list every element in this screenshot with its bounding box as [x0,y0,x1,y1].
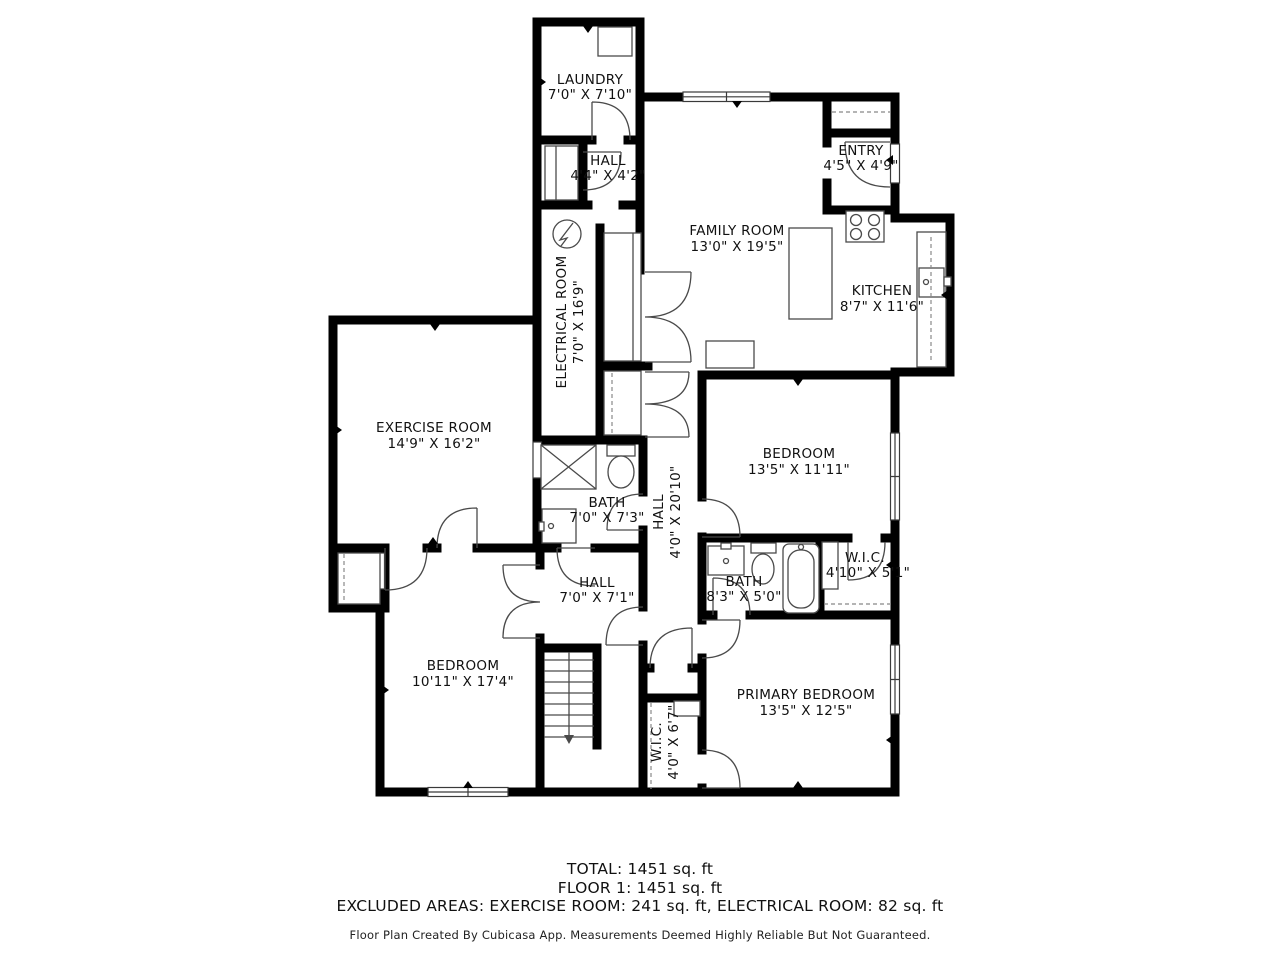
washing-machine-icon [598,27,632,56]
room-dims-wic-right: 4'10" X 5'1" [826,565,910,581]
room-dims-entry: 4'5" X 4'9" [823,158,898,174]
room-label-entry: ENTRY [838,143,884,159]
room-dims-hall-top: 4'4" X 4'2" [570,168,645,184]
room-label-hall-lower: HALL [579,575,615,591]
door-hall-vestibule [650,628,692,668]
summary-floor: FLOOR 1: 1451 sq. ft [0,879,1280,898]
room-label-hall-main: HALL [651,494,667,530]
floor-plan-canvas: LAUNDRY 7'0" X 7'10" HALL 4'4" X 4'2" EN… [0,0,1280,960]
disclaimer-text: Floor Plan Created By Cubicasa App. Meas… [0,928,1280,942]
stairs [544,652,594,744]
door-closet-upper-double [645,272,691,362]
room-dims-electrical: 7'0" X 16'9" [571,280,587,364]
room-label-hall-top: HALL [590,153,626,169]
room-dims-kitchen: 8'7" X 11'6" [840,299,924,315]
shower-icon [541,445,596,489]
room-dims-hall-lower: 7'0" X 7'1" [559,590,634,606]
stairs-down-arrow [564,735,574,744]
stove-icon [846,211,884,242]
door-hall-lower [606,607,643,645]
room-label-bath-middle: BATH [588,495,625,511]
room-label-kitchen: KITCHEN [852,283,913,299]
room-labels: LAUNDRY 7'0" X 7'10" HALL 4'4" X 4'2" EN… [376,72,924,780]
window-primary-bedroom [891,645,900,714]
sink-primary-bath-icon [708,543,744,575]
kitchen-peninsula-counter [789,228,832,319]
room-dims-exercise: 14'9" X 16'2" [387,436,480,452]
door-exercise-room [437,508,477,548]
room-label-laundry: LAUNDRY [557,72,624,88]
toilet-middle-icon [607,445,635,488]
room-dims-family-room: 13'0" X 19'5" [690,239,783,255]
room-label-exercise: EXERCISE ROOM [376,420,492,436]
door-bedroom-right [702,499,740,537]
summary-excluded: EXCLUDED AREAS: EXERCISE ROOM: 241 sq. f… [0,897,1280,916]
bathtub-icon [783,544,819,613]
room-label-family-room: FAMILY ROOM [689,223,784,239]
room-dims-wic-bottom: 4'0" X 6'7" [666,704,682,779]
window-bedroom-left-bottom [428,788,508,797]
door-primary-bedroom [702,620,740,658]
room-label-wic-bottom: W.I.C. [649,722,665,762]
room-label-wic-right: W.I.C. [845,550,885,566]
family-room-cabinet [706,341,754,368]
closet-upper-inner [604,233,641,361]
door-closet-lower-double [645,372,689,437]
room-dims-bedroom-right: 13'5" X 11'11" [748,462,850,478]
closet-lower-inner [604,371,641,435]
room-label-electrical: ELECTRICAL ROOM [554,256,570,389]
room-label-primary-bedroom: PRIMARY BEDROOM [737,687,875,703]
door-bedroom-left-double [503,565,540,638]
window-bedroom-right [891,433,900,520]
door-laundry [592,102,630,140]
room-dims-primary-bedroom: 13'5" X 12'5" [759,703,852,719]
summary-block: TOTAL: 1451 sq. ft FLOOR 1: 1451 sq. ft … [0,860,1280,942]
room-label-bedroom-right: BEDROOM [763,446,836,462]
window-exercise-bath [533,442,542,478]
room-label-bath-primary: BATH [725,574,762,590]
room-dims-laundry: 7'0" X 7'10" [548,87,632,103]
room-dims-hall-main: 4'0" X 20'10" [668,465,684,558]
room-dims-bedroom-left: 10'11" X 17'4" [412,674,514,690]
window-family-top [683,92,770,102]
door-bedroom-left-closet [385,548,427,590]
summary-total: TOTAL: 1451 sq. ft [0,860,1280,879]
room-dims-bath-middle: 7'0" X 7'3" [569,510,644,526]
floor-plan-page: LAUNDRY 7'0" X 7'10" HALL 4'4" X 4'2" EN… [0,0,1280,960]
room-label-bedroom-left: BEDROOM [427,658,500,674]
door-wic-bottom-primary [702,750,740,788]
room-dims-bath-primary: 8'3" X 5'0" [706,589,781,605]
electrical-panel-icon [553,220,581,248]
